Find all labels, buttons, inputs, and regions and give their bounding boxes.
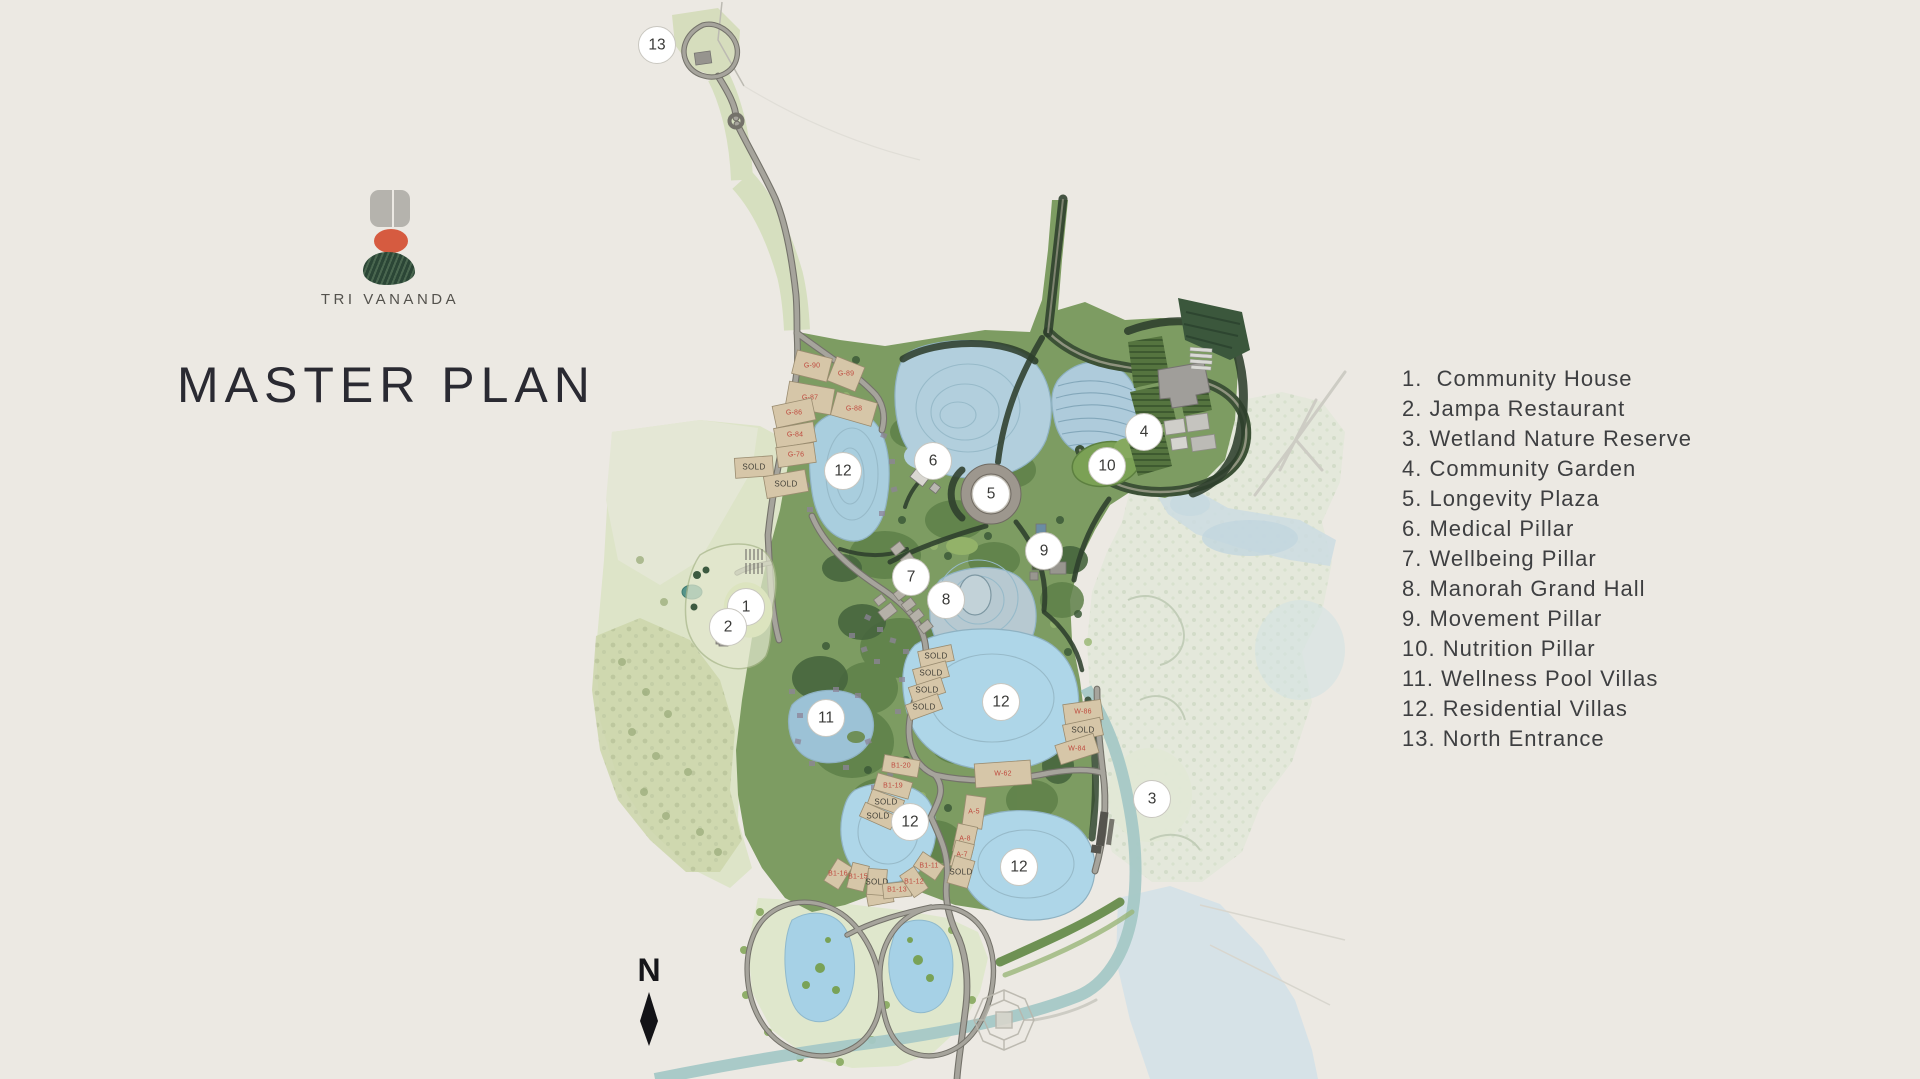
marker-wellbeing-pillar: 7 bbox=[893, 559, 930, 596]
legend-item: 1. Community House bbox=[1402, 364, 1692, 394]
plot: SOLD bbox=[734, 456, 773, 479]
svg-text:7: 7 bbox=[907, 569, 916, 586]
marker-longevity-plaza: 5 bbox=[973, 476, 1010, 513]
marker-north-entrance: 13 bbox=[639, 27, 676, 64]
map-legend: 1. Community House 2. Jampa Restaurant 3… bbox=[1402, 364, 1692, 754]
legend-item: 9. Movement Pillar bbox=[1402, 604, 1692, 634]
svg-text:12: 12 bbox=[834, 463, 851, 480]
svg-text:G-88: G-88 bbox=[846, 406, 862, 413]
svg-text:SOLD: SOLD bbox=[924, 652, 947, 661]
svg-text:B1-19: B1-19 bbox=[883, 783, 903, 790]
svg-text:B1-12: B1-12 bbox=[904, 879, 924, 886]
svg-text:SOLD: SOLD bbox=[915, 686, 938, 695]
legend-item: 7. Wellbeing Pillar bbox=[1402, 544, 1692, 574]
svg-text:3: 3 bbox=[1148, 791, 1157, 808]
legend-item: 13. North Entrance bbox=[1402, 724, 1692, 754]
wetland-pond bbox=[1255, 600, 1345, 700]
marker-residential-villas: 12 bbox=[825, 453, 862, 490]
legend-item: 10. Nutrition Pillar bbox=[1402, 634, 1692, 664]
svg-text:2: 2 bbox=[724, 619, 733, 636]
svg-text:13: 13 bbox=[648, 37, 665, 54]
svg-text:1: 1 bbox=[742, 599, 751, 616]
svg-text:SOLD: SOLD bbox=[1071, 726, 1094, 735]
svg-text:G-86: G-86 bbox=[786, 410, 802, 417]
marker-residential-villas: 12 bbox=[983, 684, 1020, 721]
marker-wellness-pool-villas: 11 bbox=[808, 700, 845, 737]
plot: W-62 bbox=[974, 760, 1032, 788]
svg-text:SOLD: SOLD bbox=[774, 480, 797, 489]
marker-manorah-grand-hall: 8 bbox=[928, 582, 965, 619]
legend-item: 5. Longevity Plaza bbox=[1402, 484, 1692, 514]
svg-text:W-62: W-62 bbox=[994, 771, 1011, 778]
compass: N bbox=[637, 952, 660, 1046]
entrance-building bbox=[694, 51, 712, 65]
legend-item: 4. Community Garden bbox=[1402, 454, 1692, 484]
brand-name: TRI VANANDA bbox=[318, 291, 462, 308]
svg-text:G-90: G-90 bbox=[804, 363, 820, 370]
marker-residential-villas: 12 bbox=[892, 804, 929, 841]
svg-text:8: 8 bbox=[942, 592, 951, 609]
marker-wetland-reserve: 3 bbox=[1134, 781, 1171, 818]
marker-medical-pillar: 6 bbox=[915, 443, 952, 480]
marker-movement-pillar: 9 bbox=[1026, 533, 1063, 570]
master-plan-page: G-90 G-89 G-87 G-88 G-86 G-84 G-76 SOLD … bbox=[0, 0, 1920, 1079]
svg-text:W-86: W-86 bbox=[1074, 709, 1091, 716]
compass-north-label: N bbox=[637, 952, 660, 988]
svg-text:12: 12 bbox=[901, 814, 918, 831]
svg-text:SOLD: SOLD bbox=[949, 868, 972, 877]
svg-text:SOLD: SOLD bbox=[874, 798, 897, 807]
svg-text:4: 4 bbox=[1140, 424, 1149, 441]
wetland-pond bbox=[1202, 520, 1298, 556]
svg-text:W-84: W-84 bbox=[1068, 746, 1085, 753]
pond-south-2 bbox=[889, 920, 953, 1013]
octagon-structure bbox=[974, 990, 1034, 1050]
svg-text:10: 10 bbox=[1098, 458, 1116, 475]
legend-item: 12. Residential Villas bbox=[1402, 694, 1692, 724]
legend-item: 8. Manorah Grand Hall bbox=[1402, 574, 1692, 604]
svg-text:G-84: G-84 bbox=[787, 432, 803, 439]
svg-text:9: 9 bbox=[1040, 543, 1049, 560]
marker-community-garden: 4 bbox=[1126, 414, 1163, 451]
svg-text:B1-16: B1-16 bbox=[828, 871, 848, 878]
svg-text:12: 12 bbox=[992, 694, 1009, 711]
svg-text:SOLD: SOLD bbox=[912, 703, 935, 712]
marker-residential-villas: 12 bbox=[1001, 849, 1038, 886]
svg-text:B1-13: B1-13 bbox=[887, 887, 907, 894]
legend-item: 3. Wetland Nature Reserve bbox=[1402, 424, 1692, 454]
tri-vananda-logo-icon bbox=[362, 190, 416, 285]
svg-text:SOLD: SOLD bbox=[742, 463, 765, 472]
legend-item: 2. Jampa Restaurant bbox=[1402, 394, 1692, 424]
svg-text:SOLD: SOLD bbox=[866, 812, 889, 821]
plot: A-5 bbox=[962, 795, 986, 829]
svg-text:SOLD: SOLD bbox=[919, 669, 942, 678]
logo-stone-red bbox=[374, 229, 408, 253]
page-title: MASTER PLAN bbox=[177, 356, 596, 414]
marker-jampa-restaurant: 2 bbox=[710, 609, 747, 646]
svg-text:12: 12 bbox=[1010, 859, 1027, 876]
marker-nutrition-pillar: 10 bbox=[1089, 448, 1126, 485]
svg-text:B1-20: B1-20 bbox=[891, 763, 911, 770]
svg-text:G-89: G-89 bbox=[838, 371, 854, 378]
svg-text:G-76: G-76 bbox=[788, 452, 804, 459]
compass-arrow-icon bbox=[640, 992, 658, 1046]
logo-stone-gray bbox=[370, 190, 410, 227]
legend-item: 11. Wellness Pool Villas bbox=[1402, 664, 1692, 694]
svg-text:11: 11 bbox=[818, 710, 834, 727]
svg-text:B1-11: B1-11 bbox=[919, 863, 938, 870]
svg-text:A-5: A-5 bbox=[968, 809, 980, 816]
southeast-river bbox=[1116, 886, 1345, 1079]
svg-text:6: 6 bbox=[929, 453, 938, 470]
logo-stone-green bbox=[363, 252, 415, 285]
svg-text:5: 5 bbox=[987, 486, 996, 503]
legend-item: 6. Medical Pillar bbox=[1402, 514, 1692, 544]
